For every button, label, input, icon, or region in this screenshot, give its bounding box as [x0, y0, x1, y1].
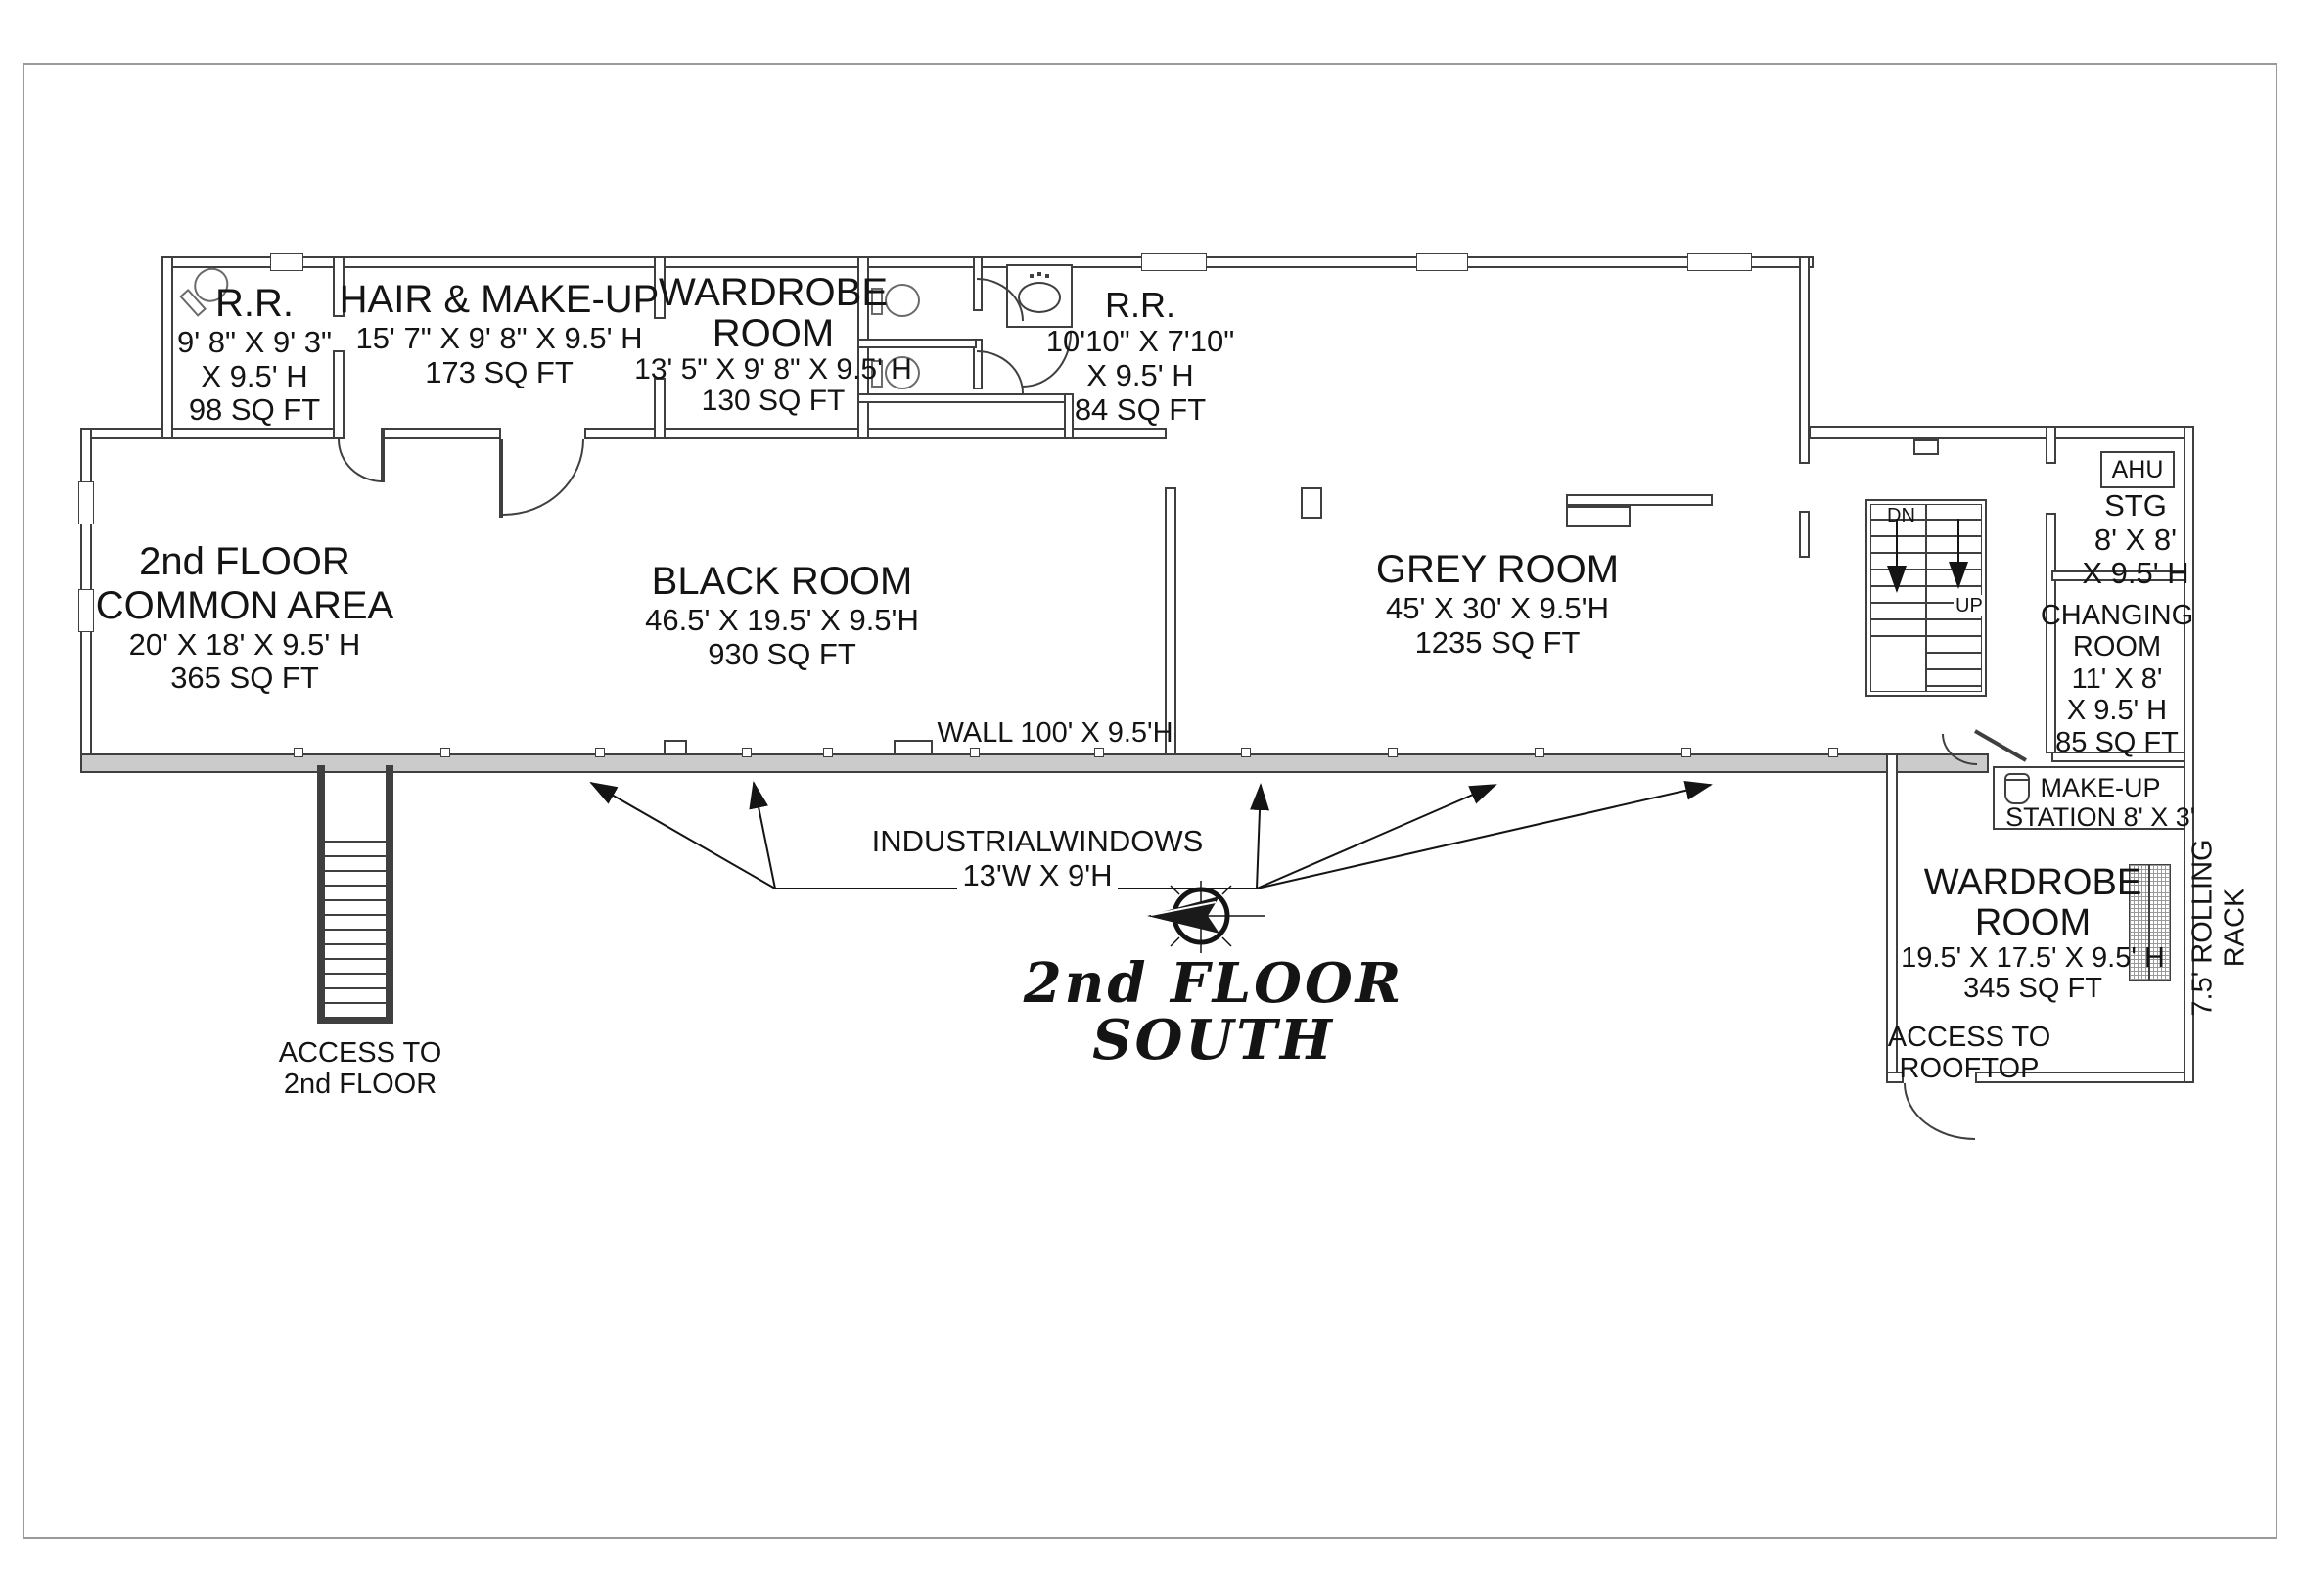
window-mullion: [1241, 748, 1251, 757]
sink-faucet-icon: [1030, 274, 1034, 278]
room-dim: 930 SQ FT: [645, 638, 919, 672]
room-dim: X 9.5' H: [1046, 359, 1234, 393]
ahu-label: AHU: [2112, 456, 2164, 483]
room-name: WARDROBE: [634, 272, 912, 313]
room-name: HAIR & MAKE-UP: [340, 278, 660, 322]
room-label-makeup-station: MAKE-UP STATION 8' X 3': [2005, 773, 2195, 832]
annotation-text: ACCESS TO: [279, 1037, 442, 1069]
window-mullion: [1681, 748, 1691, 757]
wall-segment: [2046, 426, 2056, 464]
annotation-text: 7.5' ROLLING: [2187, 839, 2220, 1016]
room-dim: 85 SQ FT: [2041, 727, 2193, 758]
room-dim: 15' 7" X 9' 8" X 9.5' H: [340, 322, 660, 356]
room-dim: X 9.5' H: [2041, 695, 2193, 726]
room-dim: 8' X 8': [2082, 524, 2188, 558]
annotation-text: DN: [1887, 505, 1915, 526]
wall-pier: [894, 740, 933, 755]
room-name: MAKE-UP: [2005, 773, 2195, 802]
room-name: BLACK ROOM: [645, 560, 919, 604]
wall-segment: [383, 428, 501, 439]
wall-segment: [80, 428, 338, 439]
annotation-text: RACK: [2220, 839, 2252, 1016]
room-dim: 98 SQ FT: [177, 393, 332, 428]
stair-dn-label: DN: [1887, 505, 1915, 526]
annotation-text: ROOFTOP: [1888, 1053, 2051, 1084]
floor-plan-canvas: R.R. 9' 8" X 9' 3" X 9.5' H 98 SQ FT HAI…: [0, 0, 2300, 1596]
room-name: STATION 8' X 3': [2005, 802, 2195, 832]
room-label-wardrobe-top: WARDROBE ROOM 13' 5" X 9' 8" X 9.5' H 13…: [634, 272, 912, 416]
window-mullion: [595, 748, 605, 757]
window-mark: [78, 589, 94, 632]
column: [1301, 487, 1322, 519]
room-dim: 10'10" X 7'10": [1046, 325, 1234, 359]
room-name: STG: [2082, 489, 2188, 524]
room-name: GREY ROOM: [1376, 548, 1619, 592]
industrial-window-wall: [80, 753, 1989, 773]
wall-opening-mark: [1416, 253, 1468, 271]
annotation-text: INDUSTRIALWINDOWS: [872, 825, 1204, 859]
stair-wall: [386, 765, 393, 1024]
wall-opening-mark: [1687, 253, 1752, 271]
window-mullion: [294, 748, 303, 757]
room-dim: 20' X 18' X 9.5' H: [96, 628, 393, 662]
industrial-windows-label: INDUSTRIALWINDOWS 13'W X 9'H: [872, 825, 1204, 892]
room-label-grey-room: GREY ROOM 45' X 30' X 9.5'H 1235 SQ FT: [1376, 548, 1619, 660]
room-dim: 84 SQ FT: [1046, 393, 1234, 428]
wall-segment: [1809, 426, 2194, 439]
room-label-wardrobe-br: WARDROBE ROOM 19.5' X 17.5' X 9.5' H 345…: [1901, 863, 2165, 1005]
room-label-hair-makeup: HAIR & MAKE-UP 15' 7" X 9' 8" X 9.5' H 1…: [340, 278, 660, 389]
rolling-rack-label: 7.5' ROLLING RACK: [2187, 839, 2253, 1016]
room-dim: 173 SQ FT: [340, 356, 660, 390]
wall-segment: [161, 256, 1814, 268]
sink-faucet-icon: [1045, 274, 1049, 278]
window-mullion: [1535, 748, 1544, 757]
wall-opening-mark: [270, 253, 303, 271]
room-dim: X 9.5' H: [2082, 557, 2188, 591]
room-name: ROOM: [2041, 631, 2193, 662]
wall-opening-mark: [1141, 253, 1207, 271]
room-name: CHANGING: [2041, 600, 2193, 631]
plan-title-line1: 2nd FLOOR: [1024, 951, 1404, 1016]
stair-wall: [317, 765, 325, 1024]
stair-treads: [325, 828, 386, 1020]
annotation-text: ACCESS TO: [1888, 1022, 2051, 1053]
wall-segment: [1566, 506, 1631, 527]
room-dim: 19.5' X 17.5' X 9.5' H: [1901, 943, 2165, 974]
window-mullion: [970, 748, 980, 757]
room-name: ROOM: [634, 313, 912, 354]
room-dim: 45' X 30' X 9.5'H: [1376, 592, 1619, 626]
window-mark: [78, 481, 94, 524]
room-dim: 46.5' X 19.5' X 9.5'H: [645, 604, 919, 638]
room-name: WARDROBE: [1901, 863, 2165, 903]
annotation-text: 2nd FLOOR: [279, 1069, 442, 1100]
room-label-stg: STG 8' X 8' X 9.5' H: [2082, 489, 2188, 591]
sink-faucet-icon: [1037, 272, 1041, 276]
window-mullion: [823, 748, 833, 757]
window-mullion: [742, 748, 752, 757]
annotation-text: UP: [1955, 595, 1983, 616]
annotation-text: 13'W X 9'H: [872, 859, 1204, 893]
room-label-changing: CHANGING ROOM 11' X 8' X 9.5' H 85 SQ FT: [2041, 600, 2193, 758]
room-label-rr-mid: R.R. 10'10" X 7'10" X 9.5' H 84 SQ FT: [1046, 286, 1234, 427]
annotation-text: WALL 100' X 9.5'H: [937, 717, 1173, 749]
wall-dimension-label: WALL 100' X 9.5'H: [937, 717, 1173, 749]
access-2nd-floor-label: ACCESS TO 2nd FLOOR: [279, 1037, 442, 1101]
access-rooftop-label: ACCESS TO ROOFTOP: [1888, 1022, 2051, 1085]
wall-segment: [584, 428, 1167, 439]
room-dim: 1235 SQ FT: [1376, 626, 1619, 661]
plan-title-line2: SOUTH: [1092, 1008, 1335, 1072]
room-name: 2nd FLOOR: [96, 540, 393, 584]
wall-segment: [161, 256, 173, 439]
window-mullion: [1388, 748, 1398, 757]
room-dim: 11' X 8': [2041, 663, 2193, 695]
wall-pier: [1913, 439, 1939, 455]
room-name: ROOM: [1901, 903, 2165, 943]
room-dim: 365 SQ FT: [96, 661, 393, 696]
window-mullion: [1094, 748, 1104, 757]
room-dim: 9' 8" X 9' 3": [177, 326, 332, 360]
room-name: AHU: [2112, 456, 2164, 483]
room-dim: 130 SQ FT: [634, 386, 912, 417]
room-label-common-area: 2nd FLOOR COMMON AREA 20' X 18' X 9.5' H…: [96, 540, 393, 696]
wall-pier: [664, 740, 687, 755]
room-dim: X 9.5' H: [177, 360, 332, 394]
room-name: R.R.: [177, 282, 332, 326]
wall-segment: [1799, 511, 1810, 558]
room-dim: 345 SQ FT: [1901, 974, 2165, 1004]
room-name: COMMON AREA: [96, 584, 393, 628]
room-label-black-room: BLACK ROOM 46.5' X 19.5' X 9.5'H 930 SQ …: [645, 560, 919, 671]
room-dim: 13' 5" X 9' 8" X 9.5' H: [634, 354, 912, 386]
room-name: R.R.: [1046, 286, 1234, 325]
room-label-rr-top: R.R. 9' 8" X 9' 3" X 9.5' H 98 SQ FT: [177, 282, 332, 428]
window-mullion: [1828, 748, 1838, 757]
wall-segment: [1566, 494, 1713, 506]
stair-up-label: UP: [1954, 595, 1985, 616]
window-mullion: [440, 748, 450, 757]
